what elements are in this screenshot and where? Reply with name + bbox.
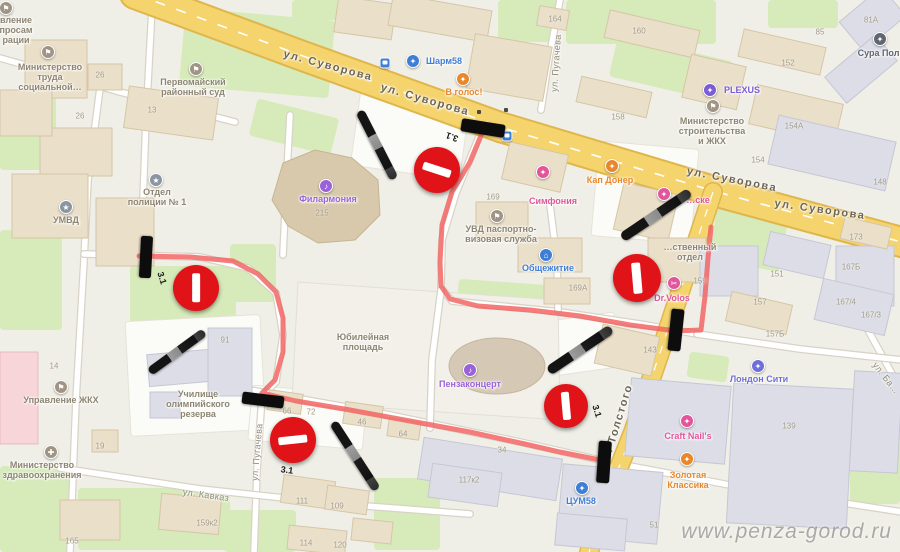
building (351, 518, 393, 544)
house-number: 85 (816, 29, 825, 38)
traffic-light-icon (477, 110, 481, 114)
poi-label-plexus: PLEXUS (724, 85, 760, 95)
bus-stop-icon[interactable] (380, 58, 391, 69)
poi-label-dr-volos: Dr.Volos (654, 293, 690, 303)
building (208, 328, 252, 396)
poi-label-sharm58: Шарм58 (426, 56, 462, 66)
poi-label-uvd-passport: УВД паспортно-визовая служба (465, 224, 537, 244)
house-number: 64 (399, 431, 408, 440)
house-number: 158 (611, 114, 624, 123)
poi-label-philharmonic: Филармония (299, 194, 357, 204)
poi-label-police-dept-1: Отделполиции № 1 (128, 187, 187, 207)
building (12, 174, 88, 238)
poi-label-simfonia: Симфония (529, 196, 577, 206)
house-number: 159 (693, 278, 706, 287)
poi-label-v-golos: В голос! (446, 87, 483, 97)
house-number: 46 (358, 419, 367, 428)
house-number: 157 (753, 299, 766, 308)
house-number: 26 (96, 72, 105, 81)
poi-icon-police-dept-1[interactable]: ★ (149, 173, 163, 187)
poi-icon-uzhkh[interactable]: ⚑ (54, 380, 68, 394)
house-number: 151 (770, 271, 783, 280)
poi-icon-umvd[interactable]: ★ (59, 200, 73, 214)
building (625, 378, 731, 464)
poi-label-minstroy: Министерствостроительстваи ЖКХ (679, 116, 745, 146)
poi-icon-minzdrav[interactable]: ✚ (44, 445, 58, 459)
house-number: 13 (148, 107, 157, 116)
poi-icon-uvd-passport[interactable]: ⚑ (490, 209, 504, 223)
poi-label-olympic-school: Училищеолимпийскогорезерва (166, 389, 230, 419)
poi-label-otdel: …ственныйотдел (664, 242, 717, 262)
house-number: 165 (65, 538, 78, 547)
poi-label-craft-nails: Craft Nail's (664, 431, 711, 441)
house-number: 14 (50, 363, 59, 372)
house-number: 157Б (766, 331, 785, 340)
poi-icon-tsum58[interactable]: ✦ (575, 481, 589, 495)
poi-icon-v-golos[interactable]: ✦ (456, 72, 470, 86)
poi-icon-sura[interactable]: ✦ (873, 32, 887, 46)
house-number: 114 (300, 540, 313, 549)
green-area (686, 351, 729, 382)
poi-label-sura: Сура Пол… (858, 48, 900, 58)
poi-icon-minstroy[interactable]: ⚑ (706, 99, 720, 113)
house-number: 164 (548, 16, 561, 25)
poi-label-migration-office: влениепросамрации (0, 15, 33, 45)
poi-icon-dr-volos[interactable]: ✂ (667, 276, 681, 290)
house-number: 154 (751, 157, 764, 166)
no-entry-bar (422, 162, 453, 179)
house-number: 111 (296, 498, 308, 507)
poi-label-umvd: УМВД (53, 215, 79, 225)
poi-label-tsum58: ЦУМ58 (566, 496, 596, 506)
house-number: 167/3 (861, 312, 881, 321)
house-number: 91 (221, 337, 230, 346)
house-number: 154А (785, 123, 804, 132)
house-number: 167/4 (836, 299, 856, 308)
no-entry-sign (414, 147, 460, 193)
house-number: 139 (782, 423, 795, 432)
house-number: 51 (650, 522, 659, 531)
poi-icon-philharmonic[interactable]: ♪ (319, 179, 333, 193)
watermark: www.penza-gorod.ru (681, 520, 892, 544)
poi-icon-mintrud[interactable]: ⚑ (41, 45, 55, 59)
house-number: 167Б (842, 264, 861, 273)
house-number: 19 (96, 443, 105, 452)
house-number: 81А (864, 17, 878, 26)
no-entry-bar (561, 392, 571, 421)
map-viewport[interactable]: www.penza-gorod.ru ул. Сувороваул. Сувор… (0, 0, 900, 552)
no-entry-sign (270, 417, 316, 463)
green-area (292, 0, 340, 20)
house-number: 66 (283, 408, 292, 417)
building (88, 64, 122, 90)
poi-icon-london-city[interactable]: ✦ (751, 359, 765, 373)
building (60, 500, 120, 540)
poi-label-zolotaya-klassika: ЗолотаяКлассика (667, 470, 708, 490)
map-canvas[interactable] (0, 0, 900, 552)
house-number: 169А (569, 285, 588, 294)
building (0, 90, 52, 136)
house-number: 72 (307, 409, 316, 418)
no-entry-bar (192, 273, 200, 302)
poi-icon-penzaconcert[interactable]: ♪ (463, 363, 477, 377)
traffic-light-icon (504, 108, 508, 112)
road-closure-bar (139, 236, 153, 279)
house-number: 169 (486, 194, 499, 203)
house-number: 152 (781, 60, 794, 69)
poi-icon-zolotaya-klassika[interactable]: ✦ (680, 452, 694, 466)
house-number: 173 (849, 234, 862, 243)
poi-icon-sharm58[interactable]: ✦ (406, 54, 420, 68)
green-area (224, 510, 296, 552)
poi-label-yubileynaya-square: Юбилейнаяплощадь (337, 332, 389, 352)
poi-label-minzdrav: Министерствоздравоохранения (2, 460, 81, 480)
green-area (0, 230, 62, 330)
poi-icon-kap-doner[interactable]: ✦ (605, 159, 619, 173)
house-number: 26 (76, 113, 85, 122)
poi-icon-court[interactable]: ⚑ (189, 62, 203, 76)
green-area (768, 0, 838, 28)
house-number: 34 (498, 447, 507, 456)
poi-label-mintrud: Министерствотрудасоциальной… (18, 62, 82, 92)
house-number: 215 (315, 210, 328, 219)
poi-icon-obshchezhitie[interactable]: ⌂ (539, 248, 553, 262)
house-number: 160 (632, 28, 645, 37)
no-entry-sign (173, 265, 219, 311)
poi-label-uzhkh: Управление ЖКХ (23, 395, 98, 405)
no-entry-sign (613, 254, 661, 302)
poi-label-penzaconcert: Пензаконцерт (439, 379, 501, 389)
poi-label-obshchezhitie: Общежитие (522, 263, 574, 273)
house-number: 109 (330, 503, 343, 512)
poi-icon-plexus[interactable]: ✦ (703, 83, 717, 97)
house-number: 143 (643, 347, 656, 356)
house-number: 120 (333, 542, 346, 551)
poi-label-court: Первомайскийрайонный суд (160, 77, 225, 97)
no-entry-bar (278, 434, 308, 445)
building (555, 513, 628, 551)
building (726, 383, 853, 529)
poi-icon-craft-nails[interactable]: ✦ (680, 414, 694, 428)
no-entry-sign (544, 384, 588, 428)
poi-icon-simfonia[interactable]: ✦ (536, 165, 550, 179)
no-entry-bar (631, 262, 642, 293)
house-number: 148 (873, 179, 886, 188)
house-number: 159к2 (196, 520, 217, 529)
sign-code-label: 3.1 (280, 464, 294, 476)
poi-label-london-city: Лондон Сити (730, 374, 788, 384)
poi-label-kap-doner: Кап Донер (587, 175, 634, 185)
house-number: 117к2 (459, 477, 480, 486)
